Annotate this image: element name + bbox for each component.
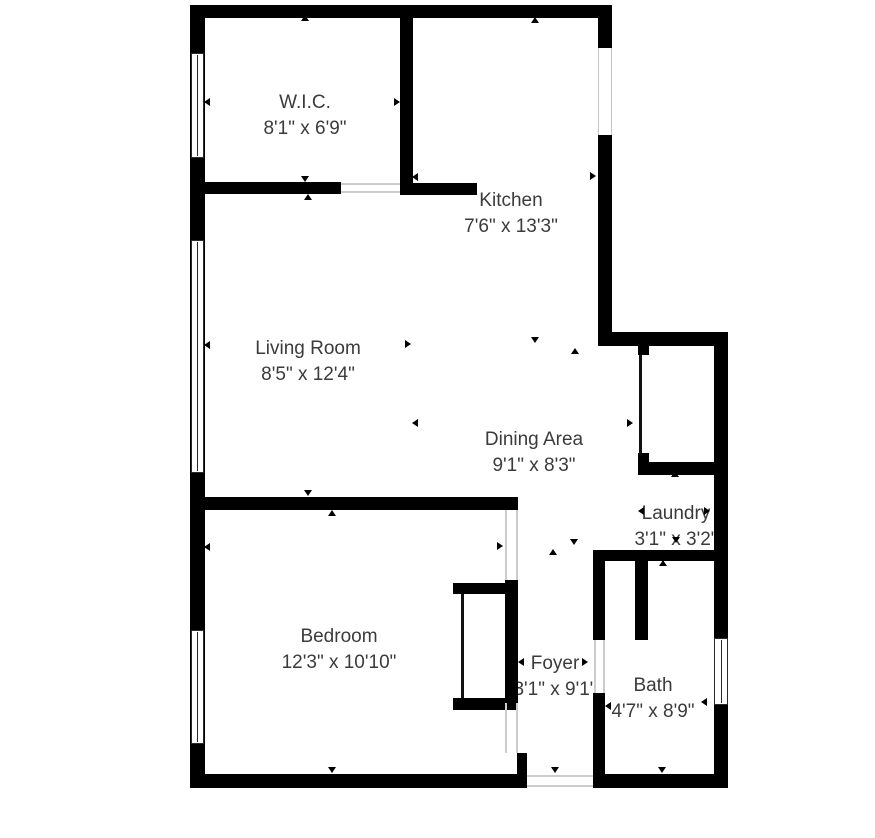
direction-marker-icon: [301, 15, 309, 21]
direction-marker-icon: [605, 702, 611, 710]
wall-dining-extension: [598, 332, 728, 346]
bedroom-lower-door-frame: [505, 703, 507, 753]
room-label-bath: Bath 4'7" x 8'9": [611, 673, 694, 725]
bedroom-lower-door-frame: [516, 703, 518, 753]
bedroom-closet-door-line: [461, 594, 464, 698]
room-name: Kitchen: [464, 188, 558, 214]
wall-bedroom-closet-bottom: [453, 698, 518, 710]
room-label-kitchen: Kitchen 7'6" x 13'3": [464, 188, 558, 240]
direction-marker-icon: [394, 98, 400, 106]
wall-bath-left-lower: [593, 693, 605, 774]
wall-bath-interior-stub: [635, 550, 648, 640]
direction-marker-icon: [549, 549, 557, 555]
room-name: Bath: [611, 673, 694, 699]
wall-bath-top: [593, 550, 714, 561]
room-dimensions: 8'1" x 6'9": [263, 116, 346, 142]
direction-marker-icon: [304, 490, 312, 496]
room-dimensions: 4'7" x 8'9": [611, 699, 694, 725]
direction-marker-icon: [412, 419, 418, 427]
direction-marker-icon: [638, 507, 644, 515]
direction-marker-icon: [590, 172, 596, 180]
direction-marker-icon: [405, 340, 411, 348]
window-kitchen-right: [598, 48, 612, 135]
window-bath-right: [714, 638, 728, 705]
direction-marker-icon: [204, 341, 210, 349]
room-dimensions: 12'3" x 10'10": [282, 650, 397, 676]
wall-bath-left-upper: [593, 550, 605, 640]
laundry-closet-stub-top: [638, 345, 649, 355]
entry-door-frame: [527, 785, 593, 787]
direction-marker-icon: [701, 698, 707, 706]
direction-marker-icon: [671, 471, 679, 477]
direction-marker-icon: [531, 17, 539, 23]
direction-marker-icon: [570, 539, 578, 545]
direction-marker-icon: [328, 510, 336, 516]
wall-wic-bottom: [205, 182, 341, 194]
direction-marker-icon: [672, 537, 680, 543]
wall-foyer-left: [505, 580, 518, 703]
direction-marker-icon: [304, 194, 312, 200]
bedroom-door-frame: [505, 510, 507, 580]
room-label-wic: W.I.C. 8'1" x 6'9": [263, 90, 346, 142]
window-living-left: [191, 240, 204, 473]
room-dimensions: 9'1" x 8'3": [485, 453, 583, 479]
direction-marker-icon: [571, 348, 579, 354]
wall-bedroom-top: [205, 497, 518, 510]
window-wic-left: [191, 53, 204, 158]
direction-marker-icon: [518, 658, 524, 666]
bath-door-frame: [603, 640, 605, 693]
direction-marker-icon: [551, 767, 559, 773]
direction-marker-icon: [412, 173, 418, 181]
room-label-bedroom: Bedroom 12'3" x 10'10": [282, 624, 397, 676]
direction-marker-icon: [497, 542, 503, 550]
entry-door-frame: [527, 775, 593, 777]
wall-bedroom-closet-top: [453, 583, 518, 594]
direction-marker-icon: [704, 507, 710, 515]
direction-marker-icon: [204, 543, 210, 551]
direction-marker-icon: [582, 658, 588, 666]
wall-exterior-bottom-left: [190, 774, 527, 788]
wall-kitchen-stub: [400, 183, 477, 195]
direction-marker-icon: [328, 767, 336, 773]
laundry-closet-door-line: [639, 355, 642, 455]
room-name: Living Room: [255, 336, 361, 362]
direction-marker-icon: [531, 337, 539, 343]
wall-wic-right: [400, 18, 413, 194]
room-dimensions: 7'6" x 13'3": [464, 214, 558, 240]
wall-exterior-bottom-right: [593, 774, 728, 788]
direction-marker-icon: [627, 419, 633, 427]
wall-exterior-top: [190, 5, 612, 18]
bath-door-frame: [594, 640, 596, 693]
floor-plan: W.I.C. 8'1" x 6'9" Kitchen 7'6" x 13'3" …: [0, 0, 875, 838]
room-dimensions: 3'1" x 9'1": [513, 677, 596, 703]
direction-marker-icon: [658, 767, 666, 773]
room-label-living-room: Living Room 8'5" x 12'4": [255, 336, 361, 388]
room-name: Dining Area: [485, 427, 583, 453]
wall-laundry-closet-bottom: [638, 462, 728, 475]
direction-marker-icon: [301, 176, 309, 182]
room-name: Bedroom: [282, 624, 397, 650]
entry-door-jamb: [517, 753, 527, 774]
wall-exterior-right: [714, 332, 728, 788]
direction-marker-icon: [204, 98, 210, 106]
room-name: W.I.C.: [263, 90, 346, 116]
wic-door-frame: [341, 191, 400, 193]
window-bedroom-left: [191, 630, 204, 744]
direction-marker-icon: [659, 560, 667, 566]
wic-door-frame: [341, 183, 400, 185]
bedroom-door-frame: [516, 510, 518, 580]
room-label-dining-area: Dining Area 9'1" x 8'3": [485, 427, 583, 479]
room-dimensions: 8'5" x 12'4": [255, 362, 361, 388]
